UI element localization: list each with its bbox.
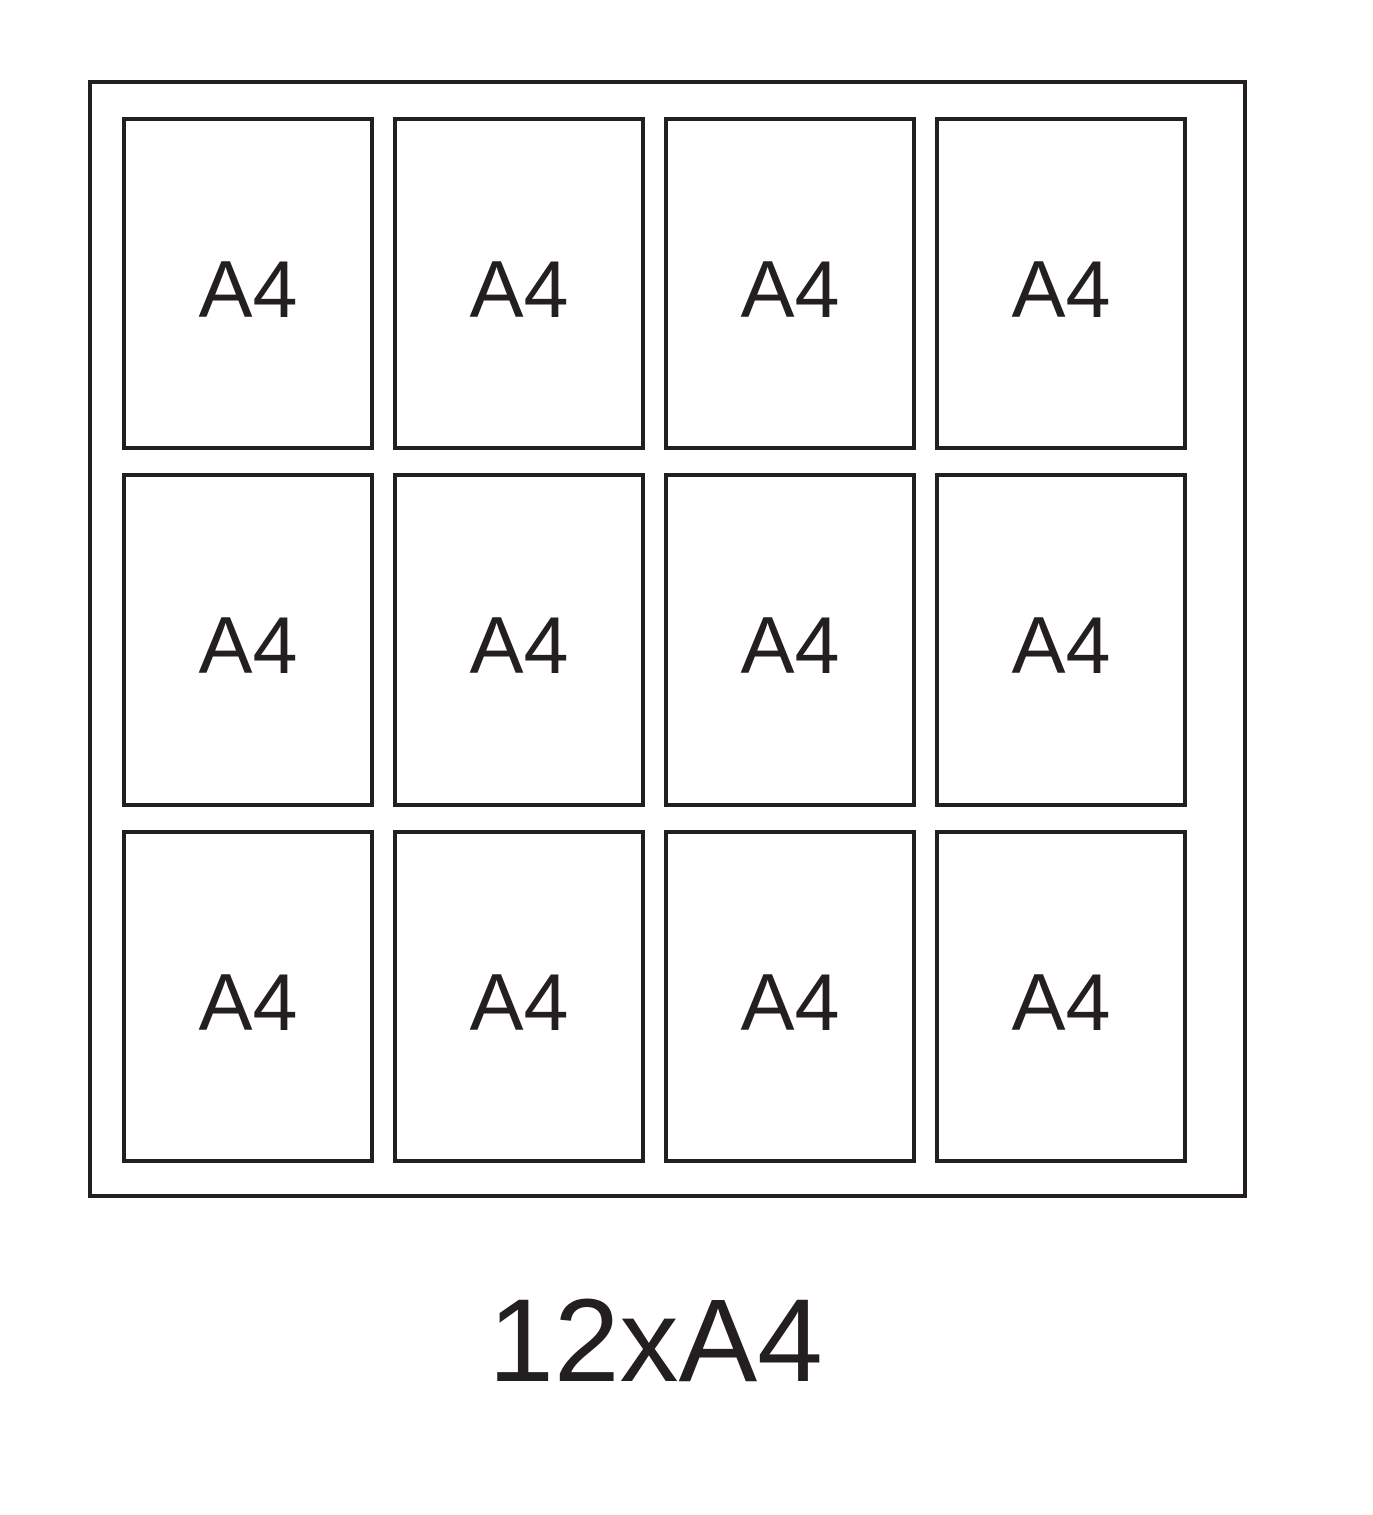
- a4-cell: A4: [122, 830, 374, 1163]
- a4-cell-label: A4: [469, 592, 568, 687]
- a4-cell-label: A4: [469, 949, 568, 1044]
- a4-cell: A4: [393, 830, 645, 1163]
- a4-cell: A4: [935, 473, 1187, 806]
- a4-cell-label: A4: [1011, 236, 1110, 331]
- a4-cell-label: A4: [740, 949, 839, 1044]
- a4-cell: A4: [393, 473, 645, 806]
- a4-cell-label: A4: [1011, 949, 1110, 1044]
- a4-cell: A4: [122, 117, 374, 450]
- a4-cell: A4: [122, 473, 374, 806]
- a4-cell-label: A4: [198, 236, 297, 331]
- a4-cell: A4: [664, 473, 916, 806]
- a4-cell: A4: [935, 830, 1187, 1163]
- a4-cell: A4: [393, 117, 645, 450]
- a4-cell-label: A4: [198, 949, 297, 1044]
- a4-cell-label: A4: [469, 236, 568, 331]
- a4-cell-label: A4: [1011, 592, 1110, 687]
- outer-frame: A4 A4 A4 A4 A4 A4 A4 A4 A4 A4 A4: [88, 80, 1247, 1198]
- a4-cell-label: A4: [740, 592, 839, 687]
- diagram-caption: 12xA4: [76, 1274, 1235, 1410]
- a4-cell-label: A4: [740, 236, 839, 331]
- a4-cell: A4: [664, 117, 916, 450]
- a4-cell: A4: [935, 117, 1187, 450]
- a4-cell: A4: [664, 830, 916, 1163]
- a4-sheet-layout-diagram: A4 A4 A4 A4 A4 A4 A4 A4 A4 A4 A4: [0, 0, 1373, 1515]
- a4-cell-label: A4: [198, 592, 297, 687]
